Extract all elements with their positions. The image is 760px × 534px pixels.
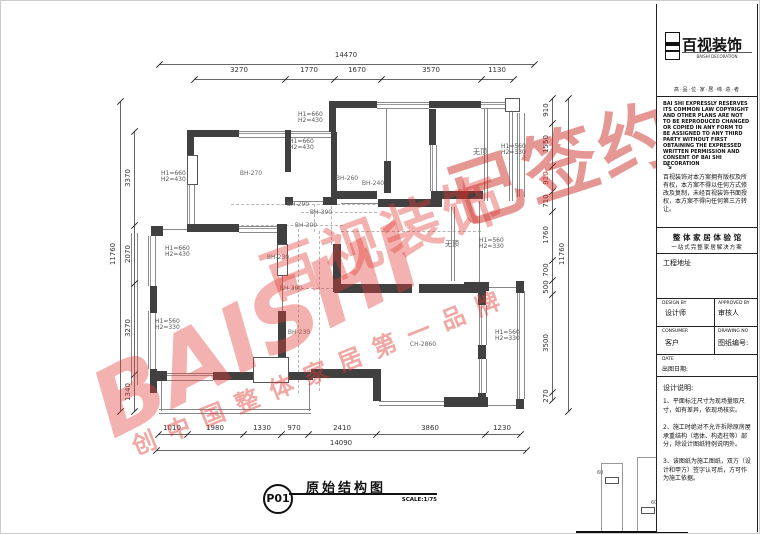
dim-right-seg: 710 — [542, 194, 550, 207]
dim-bottom-seg: 2410 — [320, 424, 364, 432]
dimension-tick — [531, 61, 538, 68]
dim-right-seg: 270 — [542, 389, 550, 402]
wall-segment — [277, 224, 287, 244]
beam-label: BH-390 — [303, 209, 339, 216]
drawing-scale: SCALE:1/75 — [353, 497, 437, 503]
beam-label: BH-290 — [280, 201, 316, 208]
no-ceiling-label: 无顶 — [473, 147, 487, 157]
beam-label: BH-240 — [355, 180, 391, 187]
dim-right-overall: 11760 — [558, 243, 566, 265]
dimension-tick — [117, 408, 124, 415]
dim-right-seg: 500 — [542, 280, 550, 293]
dim-top-seg: 1670 — [327, 66, 387, 74]
dimension-tick — [549, 397, 556, 404]
legal-text-cn: 百视装饰对本方案拥有版权及所有权，本方案不得以任何方式修改及复制，未经百视装饰书… — [663, 174, 751, 214]
dim-top-seg: 3270 — [209, 66, 269, 74]
window-band — [479, 359, 487, 393]
dim-left-seg: 3270 — [124, 319, 132, 337]
design-by-label-cn: 设计师 — [665, 308, 686, 318]
legal-text-en: BAI SHI EXPRESSLY RESERVES ITS COMMON LA… — [663, 101, 751, 167]
window-band — [481, 102, 506, 109]
date-label-cn: 出图日期: — [662, 364, 688, 373]
wall-segment — [478, 393, 486, 407]
wall-segment — [429, 101, 481, 108]
dim-bottom-seg: 1230 — [480, 424, 524, 432]
wall-segment — [373, 369, 381, 401]
beam-dashed-line — [319, 231, 320, 391]
thin-line — [137, 233, 138, 385]
thin-line — [161, 381, 162, 411]
watermark-stamp: 已签约 — [433, 72, 689, 246]
window-band — [239, 226, 277, 233]
wall-segment — [285, 130, 291, 172]
detail-fixture — [641, 507, 655, 514]
wall-segment — [431, 191, 483, 199]
dimension-tick — [565, 408, 572, 415]
dim-right-seg: 3500 — [542, 334, 550, 352]
dim-top-seg: 1130 — [467, 66, 527, 74]
window-height-label: H1=660H2=430 — [161, 171, 186, 183]
wall-segment — [151, 226, 163, 236]
dimension-line — [158, 434, 520, 435]
window-height-label: H1=560H2=330 — [479, 238, 504, 250]
thin-line — [488, 405, 518, 406]
window-band — [167, 373, 213, 381]
no-ceiling-label: 无顶 — [445, 239, 459, 249]
column-box — [187, 155, 198, 185]
wall-segment — [516, 281, 524, 293]
detail-section-left — [601, 463, 623, 534]
wall-segment — [287, 372, 313, 380]
title-block: 百视装饰 BAISHI DECORATION 高·品·位·家·居·缔·造·者 B… — [656, 4, 758, 532]
thin-line — [163, 229, 187, 230]
window-height-label: H1=560H2=330 — [501, 144, 526, 156]
wall-segment — [150, 286, 157, 313]
dim-bottom-seg: 3860 — [408, 424, 452, 432]
window-band — [430, 145, 437, 191]
thin-line — [386, 109, 387, 163]
dim-right-seg-red: 910 — [542, 171, 550, 184]
dim-right-seg: 1550 — [542, 135, 550, 153]
thin-line — [159, 409, 311, 410]
dimension-tick — [523, 447, 530, 454]
window-band — [239, 131, 285, 138]
notes-title: 设计说明: — [663, 383, 693, 393]
note-item: 2、施工时绝对不允许拆除原房屋承重结构（墙体、构造柱等）部分，除设计图纸特例说明… — [663, 424, 751, 450]
design-by-label-en: DESIGN BY — [662, 301, 686, 306]
date-label-en: DATE — [662, 357, 674, 362]
window-band — [377, 102, 429, 109]
arrow-icon: ↘ — [665, 162, 673, 172]
beam-label: BH-300 — [273, 285, 309, 292]
dimension-line — [552, 98, 553, 400]
note-item: 3、该图纸为施工图纸，双方（设计和甲方）签字认可后，方可作为施工依据。 — [663, 458, 751, 484]
wall-segment — [378, 199, 442, 207]
window-band — [148, 236, 156, 286]
dim-left-seg: 1340 — [124, 383, 132, 401]
thin-line — [489, 287, 517, 288]
dim-left-seg: 3370 — [124, 169, 132, 187]
consumer-label-cn: 客户 — [665, 338, 679, 348]
wall-segment — [311, 369, 379, 378]
consumer-label-en: CONSUMER — [662, 329, 688, 334]
dimension-tick — [510, 76, 517, 83]
wall-segment — [333, 191, 377, 199]
dim-left-seg: 2070 — [124, 245, 132, 263]
dim-top-seg: 3570 — [401, 66, 461, 74]
approved-by-label-en: APPROVED BY — [718, 301, 750, 306]
slogan-line1: 整 体 家 居 体 验 馆 — [657, 232, 757, 243]
window-band — [479, 305, 487, 345]
slogan-line2: 一站式完整家居解决方案 — [657, 243, 757, 251]
window-height-label: H1=660H2=430 — [165, 246, 190, 258]
dim-right-seg: 700 — [542, 263, 550, 276]
thin-line — [159, 413, 311, 414]
wall-segment — [516, 399, 524, 409]
dimension-line — [120, 101, 121, 411]
window-height-label: H1=660H2=430 — [289, 139, 314, 151]
dim-bottom-seg: 1980 — [193, 424, 237, 432]
column-box — [505, 98, 520, 112]
detail-fixture — [605, 477, 619, 484]
thin-line — [309, 381, 310, 411]
thin-line — [379, 401, 445, 402]
dim-right-seg: 1760 — [542, 226, 550, 244]
logo-tagline: 高·品·位·家·居·缔·造·者 — [657, 86, 757, 93]
thin-line — [487, 109, 488, 201]
dimension-line — [194, 79, 513, 80]
dim-top-overall: 14470 — [296, 51, 396, 59]
dimension-tick — [517, 431, 524, 438]
wall-segment — [323, 197, 337, 205]
dim-right-seg: 910 — [542, 103, 550, 116]
drawing-sheet: 14470 3270 1770 1670 3570 1130 1010 1980… — [0, 0, 760, 534]
window-height-label: H1=660H2=430 — [298, 112, 323, 124]
wall-segment — [187, 224, 239, 232]
window-height-label: H1=560H2=330 — [155, 319, 180, 331]
wall-segment — [151, 371, 167, 381]
logo-mark — [665, 32, 680, 60]
wall-segment — [334, 284, 412, 293]
beam-dashed-line — [341, 231, 481, 232]
thin-line — [379, 405, 445, 406]
column-box — [253, 357, 289, 383]
approved-by-label-cn: 审核人 — [718, 308, 739, 318]
dim-bottom-overall: 14090 — [291, 439, 391, 447]
wall-segment — [429, 109, 436, 145]
note-item: 1、平面标注尺寸为现场量取尺寸，如有差异，依现场核实。 — [663, 398, 751, 415]
wall-segment — [329, 101, 377, 108]
beam-label: BH-230 — [260, 254, 296, 261]
thin-line — [341, 203, 378, 204]
detail-dim: 60 — [597, 470, 603, 476]
window-band — [187, 182, 195, 226]
wall-segment — [329, 101, 336, 132]
drawing-no-label-en: DRAWING NO — [718, 329, 748, 334]
ceiling-height-label: CH-2860 — [401, 341, 445, 348]
window-band — [291, 131, 331, 138]
window-height-label: H1=560H2=330 — [495, 330, 520, 342]
wall-segment — [478, 345, 486, 359]
title-underline — [289, 493, 437, 495]
drawing-no-label-cn: 图纸编号: — [718, 338, 748, 348]
wall-segment — [187, 130, 239, 137]
dimension-tick — [131, 408, 138, 415]
beam-label: BH-300 — [288, 222, 324, 229]
project-address-label: 工程地址 — [663, 258, 691, 268]
beam-dashed-line — [298, 229, 299, 393]
beam-dashed-line — [331, 201, 332, 245]
wall-segment — [419, 284, 486, 293]
dimension-line — [568, 98, 569, 411]
beam-label: BH-270 — [233, 170, 269, 177]
dim-bottom-seg: 1010 — [150, 424, 194, 432]
dimension-line — [159, 64, 534, 65]
dim-bottom-seg: 970 — [272, 424, 316, 432]
dimension-line — [134, 131, 135, 411]
logo-brand-en: BAISHI DECORATION — [682, 52, 752, 59]
dimension-line — [156, 450, 526, 451]
window-band — [517, 291, 525, 399]
beam-label: BH-230 — [281, 329, 317, 336]
dim-left-overall: 11760 — [109, 243, 117, 265]
wall-segment — [384, 161, 391, 193]
